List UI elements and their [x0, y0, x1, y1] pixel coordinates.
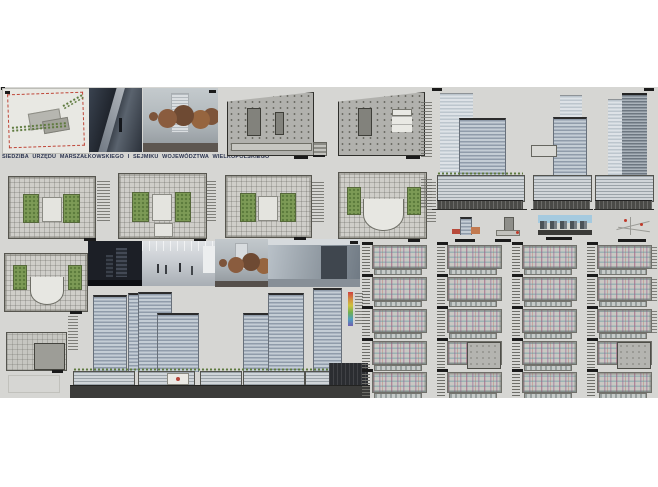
lobby-wall: [203, 246, 215, 273]
podium: [533, 175, 592, 202]
main-tower: [622, 93, 647, 177]
mini-floor-plan: [597, 372, 652, 393]
mini-floor-plan: [372, 245, 427, 269]
level-scale-column: [421, 179, 432, 207]
tower-elevation-1: [432, 87, 527, 213]
parking-plan-level-1: [227, 92, 314, 156]
mini-floor-plan-cell: [437, 341, 507, 371]
auditorium-fan: [363, 199, 403, 231]
ground-band: [70, 385, 370, 398]
main-tower-section: [553, 117, 587, 177]
mini-floor-plan-cell: [437, 309, 507, 339]
night-tower: [106, 255, 113, 277]
edge-legend-column: [651, 279, 657, 303]
parking-core: [275, 112, 284, 135]
mini-floor-plan-cell: [587, 372, 657, 398]
mini-strip-plan: [599, 269, 647, 275]
plan-legend-column: [362, 374, 370, 398]
plan-legend-column: [512, 279, 520, 304]
mini-strip-plan: [374, 333, 422, 339]
mini-strip-plan: [449, 393, 497, 398]
lobby-people: [157, 264, 159, 273]
plan-legend-column: [437, 247, 445, 272]
floor-plan-typical-b: [118, 173, 207, 239]
plan-annotation-column: [312, 182, 324, 222]
mini-strip-plan: [374, 365, 422, 371]
plan-legend-column: [587, 279, 595, 304]
mini-floor-plan-cell: [437, 277, 507, 307]
auditorium-fan: [30, 277, 65, 305]
elevation-tower: [93, 295, 127, 372]
mini-floor-plan-cell: [587, 309, 657, 339]
plan-legend-column: [362, 311, 370, 336]
mini-strip-plan: [449, 301, 497, 307]
mini-strip-plan: [524, 269, 572, 275]
mini-floor-plan: [597, 309, 652, 333]
legend-label-chip: [313, 155, 325, 157]
mini-floor-plan: [447, 309, 502, 333]
courtyard-green: [407, 187, 421, 215]
ground-floor-plan-sejmik: [338, 172, 427, 239]
plan-legend-column: [587, 311, 595, 336]
plan-legend-column: [362, 343, 370, 368]
courtyard-green: [175, 192, 192, 222]
render-facade-view: [89, 88, 142, 152]
hall-ceiling: [268, 239, 360, 245]
courtyard-green: [63, 194, 80, 223]
axon-line: [630, 217, 631, 235]
mini-floor-plan-cell: [362, 341, 432, 371]
mini-floor-plan-cell: [437, 245, 507, 275]
entrance-logo-panel: [167, 373, 189, 385]
mini-strip-plan: [524, 393, 572, 398]
plan-legend-column: [437, 279, 445, 304]
podium: [595, 175, 654, 202]
diagram-label-chip: [495, 239, 511, 242]
night-tower: [116, 248, 127, 277]
courtyard-green: [23, 194, 40, 223]
mini-floor-plan-cell: [512, 341, 582, 371]
site-plan: [2, 88, 90, 154]
plan-label-chip: [294, 237, 306, 240]
mini-floor-plan-cell: [437, 372, 507, 398]
plan-legend-column: [512, 343, 520, 368]
mini-strip-plan: [524, 301, 572, 307]
hall-dark-wall: [321, 246, 347, 280]
mini-floor-plan: [522, 277, 577, 301]
render-person-silhouette: [119, 118, 122, 132]
mini-floor-plan: [372, 309, 427, 333]
project-title: SIEDZIBA URZĘDU MARSZAŁKOWSKIEGO I SEJMI…: [2, 154, 222, 162]
render-label-chip: [209, 90, 216, 93]
mini-floor-plan-cell: [587, 245, 657, 275]
courtyard-green: [240, 193, 256, 222]
mini-strip-plan: [599, 393, 647, 398]
logo-mark: [176, 377, 180, 381]
courtyard-green: [13, 265, 26, 290]
mini-floor-plan: [522, 372, 577, 393]
plan-legend-column: [587, 247, 595, 272]
basement-plan: [6, 332, 67, 371]
level-scale-column: [421, 102, 432, 157]
central-atrium: [152, 194, 172, 220]
color-scale-legend: [348, 292, 353, 326]
basement-hall: [34, 343, 66, 369]
render-exterior-trees: [215, 239, 268, 287]
render-street-view: [143, 88, 218, 152]
parking-core: [247, 108, 261, 136]
ground-line: [531, 209, 593, 210]
mini-floor-plan: [522, 309, 577, 333]
plan-legend-column: [512, 247, 520, 272]
parking-plan-level-2: [338, 92, 425, 156]
roof-terrace-plan: [467, 342, 501, 369]
elevation-tower: [268, 293, 304, 372]
mini-strip-plan: [524, 365, 572, 371]
diagram-axonometric: [614, 215, 652, 237]
edge-legend-column: [651, 311, 657, 335]
axon-line: [618, 227, 650, 232]
tower-section-2: [531, 87, 593, 213]
competition-board: SIEDZIBA URZĘDU MARSZAŁKOWSKIEGO I SEJMI…: [0, 87, 658, 398]
mini-floor-plan: [522, 245, 577, 269]
plan-legend-column: [512, 374, 520, 398]
autumn-trees: [149, 112, 158, 121]
mini-floor-plan-cell: [512, 309, 582, 339]
screenshot-canvas: SIEDZIBA URZĘDU MARSZAŁKOWSKIEGO I SEJMI…: [0, 0, 658, 487]
floor-plan-typical-c: [225, 175, 312, 238]
axon-red-dot: [640, 223, 643, 226]
drawing-label-chip: [644, 88, 654, 91]
render-interior-lobby: [142, 241, 215, 286]
plan-legend-column: [437, 374, 445, 398]
mini-floor-plan-cell: [362, 372, 432, 398]
mini-floor-plan-cell: [587, 341, 657, 371]
mini-floor-plan: [522, 341, 577, 365]
diagram-massing-gray: [492, 215, 522, 237]
plan-legend-column: [587, 374, 595, 398]
cantilever-volume: [531, 145, 557, 157]
diagram-red-block: [452, 229, 460, 234]
elevation-midrise: [243, 313, 269, 372]
elevation-midrise: [157, 313, 199, 372]
floor-plan-typical-a: [8, 176, 96, 239]
diagram-label-chip: [618, 239, 646, 242]
plan-legend-column: [587, 343, 595, 368]
faint-foundation-outline: [8, 375, 60, 393]
ground-line: [594, 209, 654, 210]
mini-floor-plan: [597, 277, 652, 301]
mini-floor-plan-cell: [512, 372, 582, 398]
render-session-hall: [268, 239, 360, 287]
mini-floor-plan: [372, 372, 427, 393]
mini-floor-plan: [447, 372, 502, 393]
diagram-label-chip: [455, 239, 475, 242]
courtyard-green: [280, 193, 296, 222]
plan-annotation-column: [97, 181, 110, 221]
plan-legend-column: [512, 311, 520, 336]
courtyard-green: [132, 192, 149, 222]
podium: [437, 175, 525, 202]
entrance-hall: [154, 223, 173, 238]
mini-strip-plan: [599, 301, 647, 307]
courtyard-green: [347, 187, 361, 215]
site-plan-label-chip: [5, 91, 10, 94]
autumn-trees: [219, 259, 227, 267]
exterior-tower: [235, 243, 248, 270]
storage-rooms: [392, 109, 413, 116]
mini-floor-plan: [372, 277, 427, 301]
parking-ramp: [231, 143, 311, 151]
plan-annotation-column: [207, 181, 216, 221]
building-silhouettes: [540, 221, 590, 229]
mini-floor-plan-cell: [587, 277, 657, 307]
parking-core: [358, 108, 372, 136]
tower-elevation-3: [594, 87, 654, 213]
plan-legend-column: [437, 311, 445, 336]
mini-strip-plan: [374, 301, 422, 307]
diagram-context-section: [538, 215, 592, 235]
central-atrium: [258, 196, 278, 221]
base-band: [538, 230, 592, 235]
mini-floor-plan-cell: [512, 245, 582, 275]
main-elevation: [70, 285, 370, 398]
mini-floor-plan-cell: [362, 309, 432, 339]
mini-floor-plan: [372, 341, 427, 365]
mini-floor-plan: [447, 245, 502, 269]
plan-label-chip: [408, 239, 420, 242]
plan-legend-column: [437, 343, 445, 368]
plan-legend-column: [362, 279, 370, 304]
plan-label-chip: [52, 370, 63, 373]
render-tower-white: [171, 93, 189, 133]
central-atrium: [42, 197, 62, 222]
plan-label-chip: [406, 156, 420, 159]
edge-legend-column: [651, 247, 657, 271]
mini-floor-plan: [447, 277, 502, 301]
mini-strip-plan: [449, 333, 497, 339]
diagram-label-chip: [546, 237, 572, 240]
main-tower: [459, 118, 506, 177]
mini-strip-plan: [599, 333, 647, 339]
diagram-red-dot: [516, 231, 519, 234]
elevation-tower: [313, 288, 342, 372]
parking-mini-legend: [313, 142, 327, 156]
mini-floor-plan: [597, 245, 652, 269]
mini-floor-plan-cell: [362, 277, 432, 307]
roof-terrace-plan: [617, 342, 651, 369]
street-ground: [143, 143, 218, 152]
plan-legend-column: [362, 247, 370, 272]
render-night-skyline: [88, 241, 142, 286]
render-label-chip: [350, 241, 358, 244]
mini-strip-plan: [374, 393, 422, 398]
plan-label-chip: [294, 156, 308, 159]
mini-floor-plan-cell: [512, 277, 582, 307]
drawing-label-chip: [432, 88, 442, 91]
mini-strip-plan: [524, 333, 572, 339]
axon-red-dot: [624, 219, 627, 222]
diagram-orange-block: [471, 227, 480, 234]
mini-strip-plan: [374, 269, 422, 275]
diagram-massing-color: [450, 215, 482, 237]
mini-floor-plan-cell: [362, 245, 432, 275]
ground-line: [432, 209, 527, 210]
mini-strip-plan: [449, 269, 497, 275]
